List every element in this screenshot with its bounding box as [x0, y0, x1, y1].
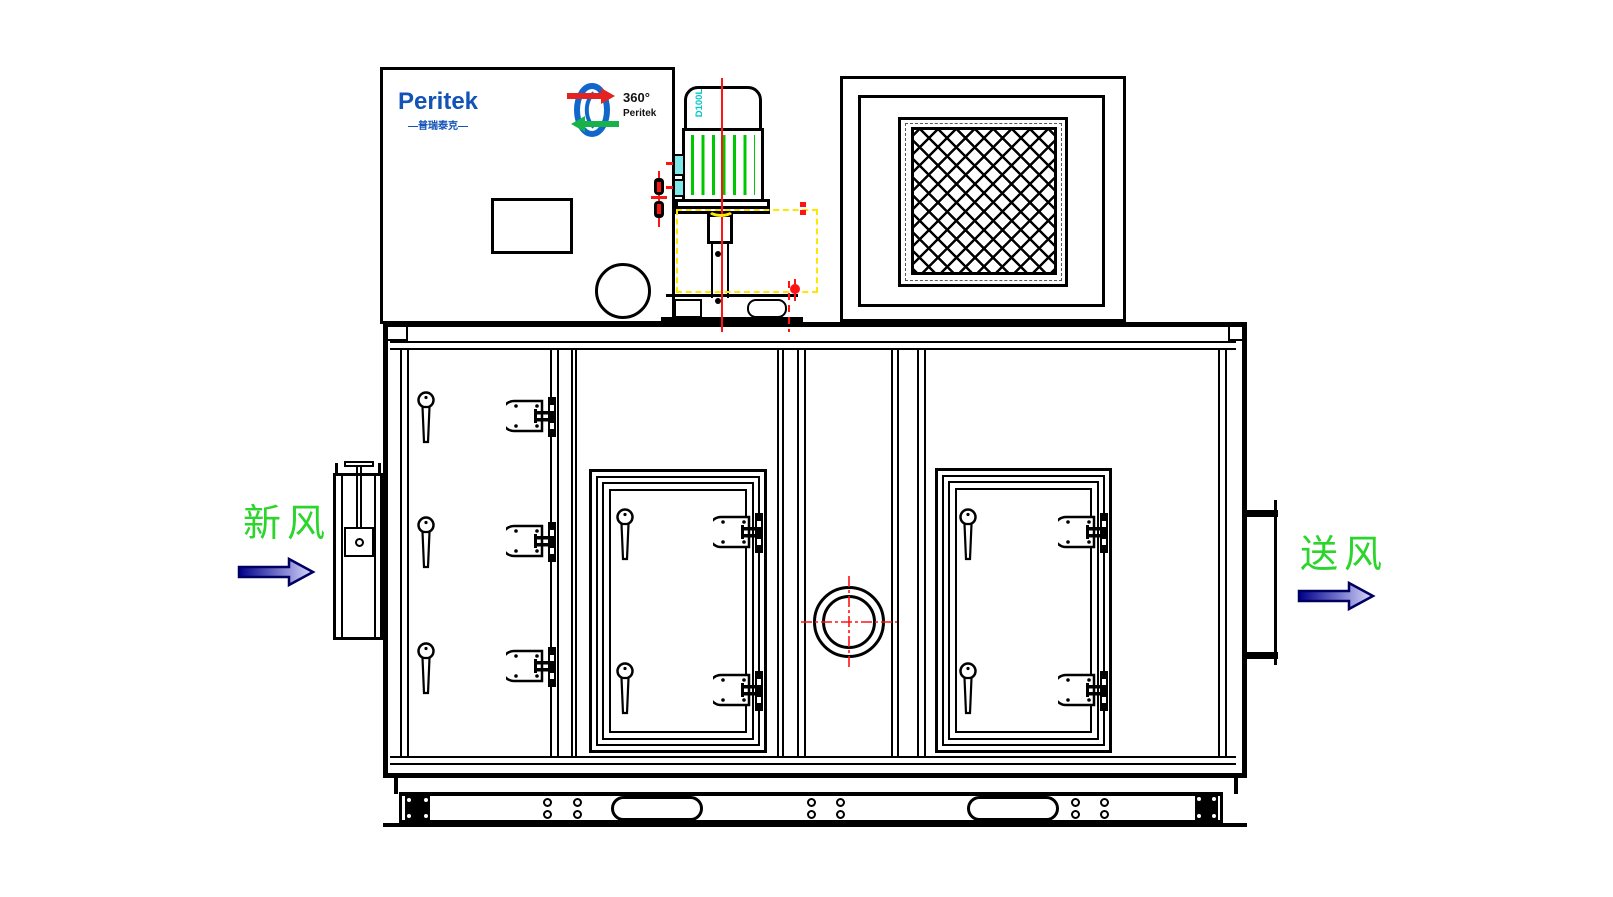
- motor-clip-icon: [673, 179, 685, 197]
- valve-symbol-icon: [650, 171, 668, 227]
- handle-icon: [417, 390, 435, 448]
- base-bolt-hole: [836, 810, 845, 819]
- motor-frame-label: D100L: [694, 78, 708, 128]
- base-bolt-hole: [1071, 798, 1080, 807]
- highlight-rect: [676, 209, 818, 293]
- lifting-slot: [967, 796, 1059, 821]
- outlet-flange: [1247, 500, 1277, 665]
- bracket-inner-line: [374, 476, 376, 637]
- latch-icon: [1058, 513, 1110, 553]
- base-bolt-hole: [1100, 810, 1109, 819]
- base-bolt-hole: [807, 798, 816, 807]
- cabinet-left-edge: [383, 322, 388, 778]
- filter-grille-mesh: [911, 127, 1057, 275]
- control-box-window: [491, 198, 573, 254]
- latch-icon: [1058, 671, 1110, 711]
- red-bolt-icon: [800, 202, 806, 207]
- handle-icon: [417, 641, 435, 699]
- motor-fins: [682, 128, 764, 202]
- base-leg-right: [1234, 778, 1238, 794]
- cabinet-bottom-edge: [383, 773, 1247, 778]
- bracket-stub: [335, 463, 338, 475]
- motor-clip-icon: [673, 154, 685, 176]
- latch-icon: [506, 522, 558, 562]
- peritek-logo-text: Peritek: [393, 88, 483, 116]
- outlet-label: 送风: [1300, 536, 1388, 574]
- actuator-rod: [356, 467, 362, 527]
- pedestal-ground-line: [661, 317, 803, 322]
- red-bolt-icon: [800, 210, 806, 215]
- rotor-logo-degrees: 360°: [623, 90, 650, 105]
- handle-icon: [959, 507, 977, 565]
- pedestal-foot-left: [674, 299, 702, 318]
- actuator-hole: [355, 538, 364, 547]
- base-foot-right: [1195, 795, 1218, 820]
- divider-3-right: [917, 350, 926, 758]
- clip-mark: [666, 162, 673, 165]
- divider-1-right: [571, 350, 577, 758]
- base-bolt-hole: [573, 810, 582, 819]
- peritek-logo-cn-text: —普瑞泰克—: [393, 117, 483, 132]
- base-foot-left: [405, 796, 430, 820]
- divider-3-left: [891, 350, 899, 758]
- cabinet-bottom-rail: [390, 756, 1236, 765]
- inlet-arrow-icon: [237, 555, 317, 589]
- base-bolt-hole: [543, 798, 552, 807]
- cad-drawing-canvas: Peritek —普瑞泰克— 360° Peritek D100L: [0, 0, 1613, 897]
- bracket-stub: [378, 463, 381, 475]
- highlight-arc: [707, 202, 735, 217]
- control-box-knockout-circle: [595, 263, 651, 319]
- base-bolt-hole: [1071, 810, 1080, 819]
- pedestal-foot-right: [747, 299, 787, 318]
- handle-icon: [616, 661, 634, 719]
- latch-icon: [506, 647, 558, 687]
- base-bolt-hole: [573, 798, 582, 807]
- latch-icon: [506, 397, 558, 437]
- cabinet-left-wall-inner: [400, 350, 409, 758]
- red-bolt-stem: [794, 279, 796, 301]
- handle-icon: [417, 515, 435, 573]
- clip-mark: [666, 186, 673, 189]
- lifting-slot: [611, 796, 703, 821]
- rotor-logo-brand: Peritek: [623, 108, 657, 119]
- base-bolt-hole: [807, 810, 816, 819]
- pedestal-base-line: [666, 294, 798, 297]
- inlet-label: 新风: [243, 505, 331, 543]
- divider-2-left: [777, 350, 784, 758]
- outlet-arrow-icon: [1297, 579, 1377, 613]
- latch-icon: [713, 671, 765, 711]
- rotor-wheel-logo: 360° Peritek: [563, 80, 665, 142]
- cabinet-top-notch-right: [1228, 327, 1242, 341]
- flange-bottom-bar: [1244, 652, 1278, 659]
- cabinet-top-rail: [390, 341, 1236, 350]
- divider-2-right: [797, 350, 806, 758]
- base-bolt-hole: [1100, 798, 1109, 807]
- peritek-logo: Peritek —普瑞泰克—: [393, 88, 483, 132]
- handle-icon: [959, 661, 977, 719]
- latch-icon: [713, 513, 765, 553]
- base-bolt-hole: [543, 810, 552, 819]
- flange-top-bar: [1244, 510, 1278, 517]
- ground-line: [383, 823, 1247, 827]
- bracket-inner-line: [341, 476, 343, 637]
- handle-icon: [616, 507, 634, 565]
- base-bolt-hole: [836, 798, 845, 807]
- cabinet-right-wall-inner: [1218, 350, 1227, 758]
- cabinet-top-notch-left: [386, 327, 408, 341]
- porthole-centerline-icon: [801, 576, 897, 670]
- base-leg-left: [394, 778, 398, 794]
